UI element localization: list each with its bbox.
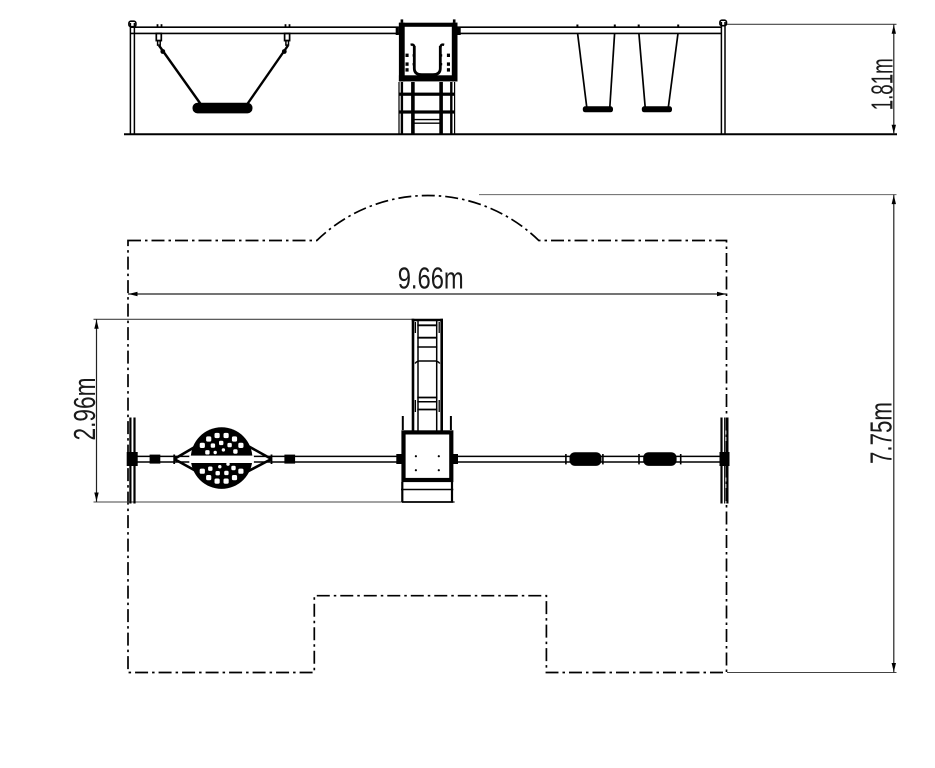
svg-text:2.96m: 2.96m [67,378,102,441]
svg-text:7.75m: 7.75m [864,402,899,464]
svg-text:1.81m: 1.81m [865,58,900,110]
svg-text:9.66m: 9.66m [398,261,464,296]
